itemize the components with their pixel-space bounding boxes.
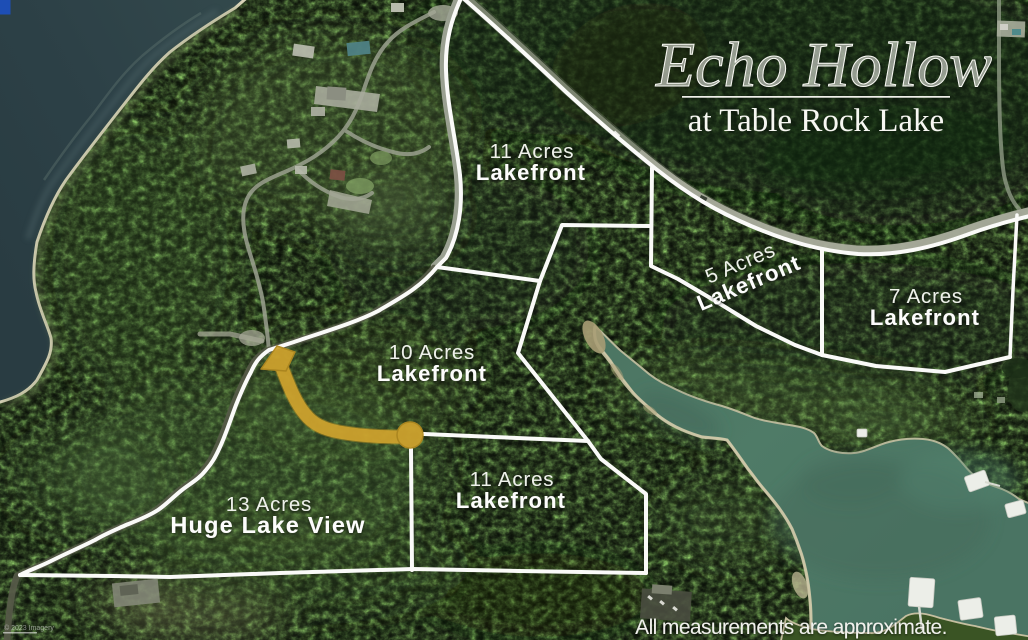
svg-text:Huge Lake View: Huge Lake View [170,512,365,538]
svg-text:Lakefront: Lakefront [377,361,487,386]
svg-text:Lakefront: Lakefront [476,160,586,185]
svg-text:Lakefront: Lakefront [870,305,980,330]
svg-text:Lakefront: Lakefront [456,488,566,513]
svg-text:All measurements are approxima: All measurements are approximate. [635,616,947,639]
svg-text:Echo Hollow: Echo Hollow [655,29,992,100]
svg-text:© 2023 Imagery: © 2023 Imagery [4,624,54,632]
svg-text:at Table Rock Lake: at Table Rock Lake [688,103,944,139]
